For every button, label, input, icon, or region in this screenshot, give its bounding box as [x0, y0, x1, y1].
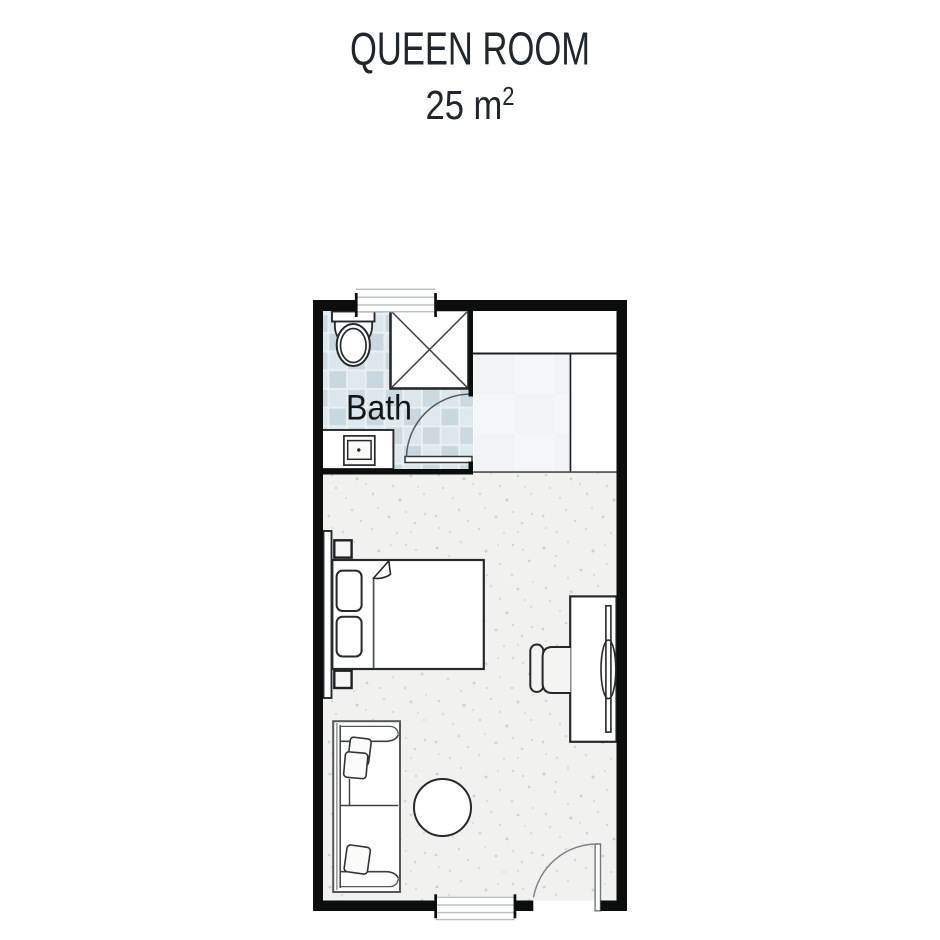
- svg-text:25 m2: 25 m2: [426, 81, 515, 128]
- svg-text:Bath: Bath: [346, 389, 412, 428]
- svg-text:QUEEN ROOM: QUEEN ROOM: [350, 23, 590, 75]
